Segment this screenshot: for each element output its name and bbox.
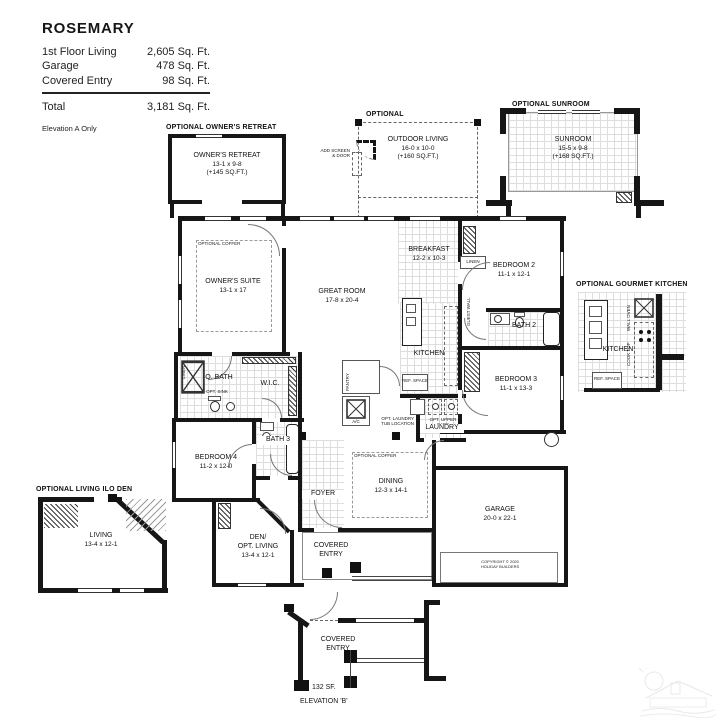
row-value: 2,605 Sq. Ft.: [147, 45, 210, 59]
door-swing: [248, 224, 280, 256]
window: [356, 618, 414, 623]
post: [108, 494, 117, 502]
wall: [424, 676, 446, 681]
great-room-label: GREAT ROOM 17-8 x 20-4: [292, 288, 392, 305]
window: [560, 252, 564, 276]
wall: [172, 418, 304, 422]
window: [172, 442, 176, 468]
owners-retreat-label: OWNER'S RETREAT 13-1 x 9-8 (+145 SQ.FT.): [170, 152, 284, 177]
post: [322, 568, 332, 578]
porch-line: [357, 662, 424, 663]
living-label: LIVING 13-4 x 12-1: [56, 532, 146, 549]
window: [300, 216, 330, 221]
wall: [298, 622, 303, 680]
step-line: [352, 576, 432, 577]
room-name: OWNER'S RETREAT: [170, 152, 284, 161]
wall: [432, 440, 436, 587]
window: [240, 216, 266, 221]
room-dims: 13-1 x 9-8: [170, 161, 284, 169]
owners-bath-label: O. BATH: [196, 374, 242, 383]
wall-oven-label: WALL OVEN: [626, 297, 631, 331]
laundry-tub: [410, 399, 425, 415]
window: [560, 376, 564, 400]
window: [78, 588, 112, 593]
wall-opening: [202, 199, 242, 205]
vanity: [260, 422, 274, 431]
window: [500, 216, 526, 221]
opt-sink-label: OPT. SINK: [198, 389, 236, 394]
door-threshold: [310, 620, 338, 621]
sqft-row: 1st Floor Living 2,605 Sq. Ft.: [42, 45, 210, 59]
door-swing: [462, 390, 488, 416]
window: [120, 588, 144, 593]
wall-exterior-left: [174, 352, 178, 420]
closet-shelves: [288, 366, 297, 416]
optional-sunroom-heading: OPTIONAL SUNROOM: [512, 101, 590, 108]
post: [350, 562, 361, 573]
optional-coffer-label: OPTIONAL COFFER: [198, 241, 240, 246]
door-opening: [282, 226, 286, 248]
room-area: (+145 SQ.FT.): [170, 169, 284, 177]
window: [178, 300, 182, 328]
room-name: OUTDOOR LIVING: [360, 136, 476, 145]
door-opening: [252, 444, 256, 464]
sqft-row: Covered Entry 98 Sq. Ft.: [42, 74, 210, 88]
wall: [460, 346, 564, 350]
window: [334, 216, 364, 221]
window: [572, 110, 600, 114]
divider: [42, 92, 210, 94]
sink: [494, 315, 502, 323]
ref-space-label: REF. SPACE: [402, 378, 428, 383]
wall: [432, 466, 568, 470]
window: [205, 216, 231, 221]
door-swing: [260, 508, 286, 534]
burner: [639, 338, 643, 342]
optional-living-heading: OPTIONAL LIVING ILO DEN: [36, 486, 132, 493]
ac-label: A/C: [342, 419, 370, 424]
appliance: [589, 321, 602, 334]
closet-shelves: [463, 226, 476, 254]
total-row: Total 3,181 Sq. Ft.: [42, 100, 210, 114]
wall: [212, 498, 260, 502]
breakfast-label: BREAKFAST 12-2 x 10-3: [398, 246, 460, 263]
add-screen-door-note: ADD SCREEN & DOOR: [318, 148, 350, 159]
row-label: Garage: [42, 59, 79, 73]
wall-dashed: [358, 196, 359, 218]
row-label: Covered Entry: [42, 74, 112, 88]
window: [178, 256, 182, 284]
row-value: 478 Sq. Ft.: [156, 59, 210, 73]
wall: [162, 540, 167, 593]
door-swing: [464, 318, 486, 340]
door-swing: [380, 366, 400, 386]
room-area: (+160 SQ.FT.): [360, 153, 476, 161]
total-value: 3,181 Sq. Ft.: [147, 100, 210, 114]
post: [355, 119, 362, 126]
stair-hatch: [126, 499, 166, 531]
ref-space-label: REF. SPACE: [592, 376, 622, 381]
row-label: 1st Floor Living: [42, 45, 117, 59]
column: [392, 432, 400, 440]
room-name: SUNROOM: [508, 136, 638, 145]
outdoor-living-label: OUTDOOR LIVING 16-0 x 10-0 (+160 SQ.FT.): [360, 136, 476, 161]
covered-entry-label: COVERED ENTRY: [308, 542, 354, 560]
wall-exterior-right: [560, 216, 564, 434]
appliance: [589, 306, 602, 317]
pantry-label: PANTRY: [345, 363, 350, 391]
plan-title: ROSEMARY: [42, 20, 210, 37]
bathtub: [543, 312, 560, 346]
linen-label: LINEN: [181, 355, 186, 379]
wall: [634, 108, 640, 134]
room-area: (+168 SQ.FT.): [508, 153, 638, 161]
screen-door: [352, 152, 362, 176]
opt-laundry-tub-note: OPT. LAUNDRY TUB LOCATION: [372, 416, 414, 427]
optional-coffer-label: OPTIONAL COFFER: [354, 453, 396, 458]
row-value: 98 Sq. Ft.: [162, 74, 210, 88]
optional-gourmet-kitchen-heading: OPTIONAL GOURMET KITCHEN: [576, 281, 688, 288]
wall: [38, 497, 43, 593]
closet-shelves: [242, 357, 296, 364]
title-block: ROSEMARY 1st Floor Living 2,605 Sq. Ft. …: [42, 20, 210, 133]
dining-label: DINING 12-3 x 14-1: [352, 478, 430, 495]
burner: [647, 338, 651, 342]
ac-x-box: [346, 399, 366, 419]
wall: [170, 204, 174, 218]
window: [368, 216, 394, 221]
wall-cabinet-x-box: [634, 298, 654, 318]
elevation-b-caption: ELEVATION 'B': [300, 698, 348, 705]
bath3-label: BATH 3: [258, 436, 298, 445]
wall: [636, 204, 641, 218]
wall: [432, 583, 568, 587]
wall: [660, 354, 684, 360]
post: [474, 119, 481, 126]
optional-outdoor-living-heading: OPTIONAL: [366, 111, 404, 118]
counter: [444, 306, 458, 386]
wall: [178, 352, 290, 356]
bath2-label: BATH 2: [506, 322, 542, 331]
wall: [212, 498, 216, 587]
closet-shelves: [464, 352, 480, 392]
door-swing: [424, 440, 444, 460]
owners-suite-label: OWNER'S SUITE 13-1 x 17: [188, 278, 278, 295]
dryer-drum: [448, 403, 455, 410]
bedroom3-label: BEDROOM 3 11-1 x 13-3: [480, 376, 552, 393]
window: [538, 110, 566, 114]
porch-line: [357, 658, 424, 659]
window: [238, 583, 266, 587]
total-label: Total: [42, 100, 65, 114]
window: [196, 134, 222, 138]
copyright-note: COPYRIGHT © 2020 HOLIDAY BUILDERS: [472, 560, 528, 570]
door-opening: [270, 476, 288, 480]
post: [294, 680, 309, 691]
wall: [564, 466, 568, 587]
kitchen-label: KITCHEN: [404, 350, 454, 359]
elevation-b-covered-entry-label: COVERED ENTRY: [312, 636, 364, 654]
column: [298, 432, 306, 440]
optional-owners-retreat-heading: OPTIONAL OWNER'S RETREAT: [166, 124, 276, 131]
bedroom2-label: BEDROOM 2 11-1 x 12-1: [478, 262, 550, 279]
water-heater: [544, 432, 559, 447]
gourmet-kitchen-label: KITCHEN: [592, 346, 644, 355]
wall: [400, 394, 466, 398]
wall-exterior-left: [178, 216, 182, 356]
elevation-b-area: 132 SF.: [310, 684, 338, 691]
room-dims: 16-0 x 10-0: [360, 145, 476, 153]
window: [410, 216, 440, 221]
sunroom-label: SUNROOM 15-5 x 9-8 (+168 SQ.FT.): [508, 136, 638, 161]
foyer-label: FOYER: [302, 490, 344, 499]
floor-plan-canvas: ROSEMARY 1st Floor Living 2,605 Sq. Ft. …: [0, 0, 720, 720]
washer-drum: [432, 403, 439, 410]
room-dims: 15-5 x 9-8: [508, 145, 638, 153]
post: [284, 604, 294, 612]
hatch: [44, 504, 78, 528]
wall: [656, 294, 662, 390]
den-label: DEN/ OPT. LIVING 13-4 x 12-1: [222, 534, 294, 560]
step-line: [352, 580, 432, 581]
bedroom4-label: BEDROOM 4 11-2 x 12-0: [180, 454, 252, 471]
sink: [406, 304, 416, 313]
laundry-label: LAUNDRY: [420, 424, 464, 433]
toilet: [210, 401, 220, 412]
burner: [639, 330, 643, 334]
burner: [647, 330, 651, 334]
builder-logo: [638, 668, 718, 718]
wic-label: W.I.C.: [248, 380, 292, 389]
wall-dashed: [477, 196, 478, 218]
door-swing: [310, 592, 338, 620]
sqft-row: Garage 478 Sq. Ft.: [42, 59, 210, 73]
hatch: [616, 192, 632, 203]
sink: [226, 402, 235, 411]
wall: [424, 600, 429, 680]
porch-line: [350, 650, 351, 688]
closet-shelves: [218, 503, 231, 529]
wall: [500, 108, 506, 134]
garage-label: GARAGE 20-0 x 22-1: [452, 506, 548, 523]
sink: [406, 317, 416, 326]
